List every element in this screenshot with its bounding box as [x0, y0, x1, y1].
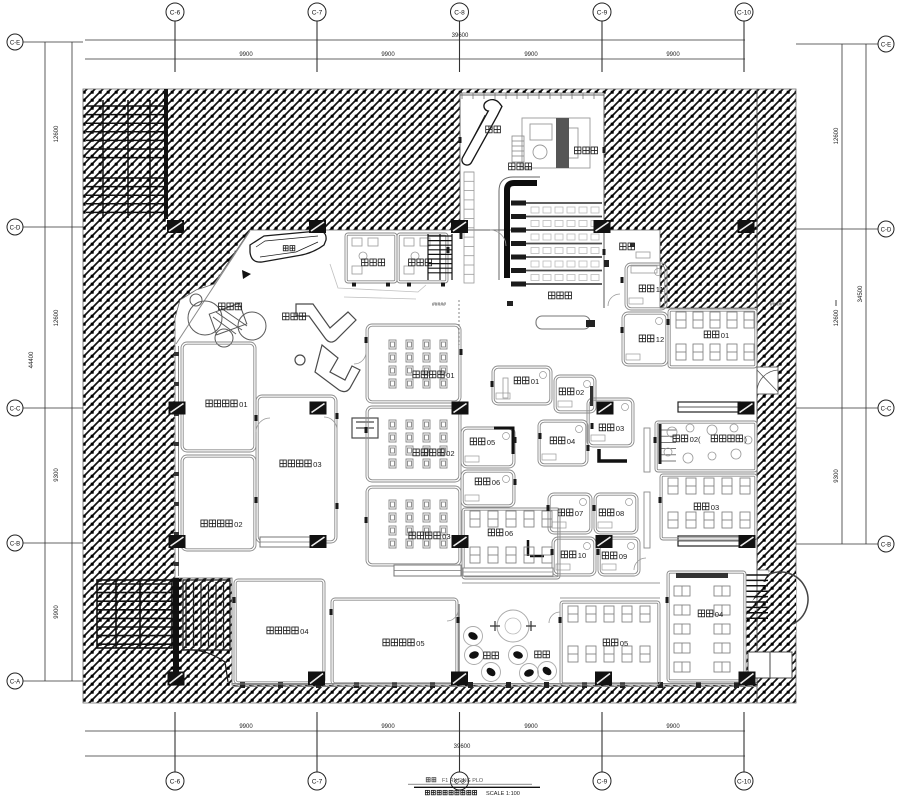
- svg-text:12600: 12600: [834, 309, 840, 326]
- svg-text:#####: #####: [432, 302, 446, 308]
- svg-text:12600: 12600: [54, 309, 60, 326]
- svg-text:#####: #####: [770, 302, 784, 308]
- svg-text:9900: 9900: [524, 724, 538, 730]
- svg-text:9900: 9900: [666, 52, 680, 58]
- svg-text:06: 06: [505, 529, 513, 538]
- svg-text:03: 03: [711, 503, 719, 512]
- svg-text:C-7: C-7: [312, 779, 323, 786]
- svg-text:9900: 9900: [239, 52, 253, 58]
- svg-text:01: 01: [446, 371, 454, 380]
- svg-text:11: 11: [656, 285, 664, 294]
- svg-text:02: 02: [234, 520, 242, 529]
- svg-text:12600: 12600: [54, 125, 60, 142]
- svg-text:04: 04: [567, 437, 575, 446]
- svg-text:F1 RNSING PLO: F1 RNSING PLO: [442, 778, 483, 784]
- svg-text:03: 03: [442, 532, 450, 541]
- svg-text:C-9: C-9: [597, 10, 608, 17]
- svg-text:SCALE 1:100: SCALE 1:100: [486, 791, 520, 797]
- svg-text:C-6: C-6: [170, 779, 181, 786]
- svg-text:39600: 39600: [454, 744, 471, 750]
- svg-text:39600: 39600: [452, 33, 469, 39]
- svg-text:02(: 02(: [690, 435, 701, 444]
- svg-text:C-D: C-D: [10, 225, 21, 231]
- svg-text:05: 05: [620, 639, 628, 648]
- svg-text:10: 10: [578, 551, 586, 560]
- svg-text:C-D: C-D: [881, 227, 892, 233]
- svg-text:C-E: C-E: [881, 42, 891, 48]
- svg-text:9300: 9300: [834, 469, 840, 483]
- svg-text:9900: 9900: [54, 605, 60, 619]
- svg-text:9900: 9900: [381, 724, 395, 730]
- svg-text:C-C: C-C: [10, 406, 21, 412]
- svg-text:08: 08: [616, 509, 624, 518]
- svg-text:05: 05: [416, 639, 424, 648]
- svg-text:02: 02: [446, 449, 454, 458]
- svg-text:12600: 12600: [834, 127, 840, 144]
- svg-text:C-C: C-C: [881, 406, 892, 412]
- svg-text:9900: 9900: [666, 724, 680, 730]
- svg-text:34500: 34500: [858, 285, 864, 302]
- svg-text:09: 09: [619, 552, 627, 561]
- svg-text:06: 06: [492, 478, 500, 487]
- svg-text:04: 04: [300, 627, 308, 636]
- svg-text:12: 12: [656, 335, 664, 344]
- svg-text:C-E: C-E: [10, 40, 20, 46]
- svg-text:03: 03: [616, 424, 624, 433]
- svg-text:C-9: C-9: [597, 779, 608, 786]
- svg-text:C-10: C-10: [737, 779, 751, 786]
- svg-text:C-B: C-B: [10, 541, 20, 547]
- svg-text:04: 04: [715, 610, 723, 619]
- svg-text:C-A: C-A: [10, 679, 20, 685]
- svg-text:C-10: C-10: [737, 10, 751, 17]
- svg-text:9900: 9900: [524, 52, 538, 58]
- svg-text:C-B: C-B: [881, 542, 891, 548]
- svg-text:01: 01: [239, 400, 247, 409]
- svg-text:C-6: C-6: [170, 10, 181, 17]
- svg-text:9900: 9900: [239, 724, 253, 730]
- svg-text:9300: 9300: [54, 468, 60, 482]
- svg-text:44400: 44400: [29, 351, 35, 368]
- svg-text:01: 01: [721, 331, 729, 340]
- svg-text:03: 03: [313, 460, 321, 469]
- svg-text:07: 07: [575, 509, 583, 518]
- svg-text:02: 02: [576, 388, 584, 397]
- svg-text:05: 05: [487, 438, 495, 447]
- svg-text:9900: 9900: [381, 52, 395, 58]
- svg-text:C-8: C-8: [454, 10, 465, 17]
- svg-text:01: 01: [531, 377, 539, 386]
- svg-text:C-7: C-7: [312, 10, 323, 17]
